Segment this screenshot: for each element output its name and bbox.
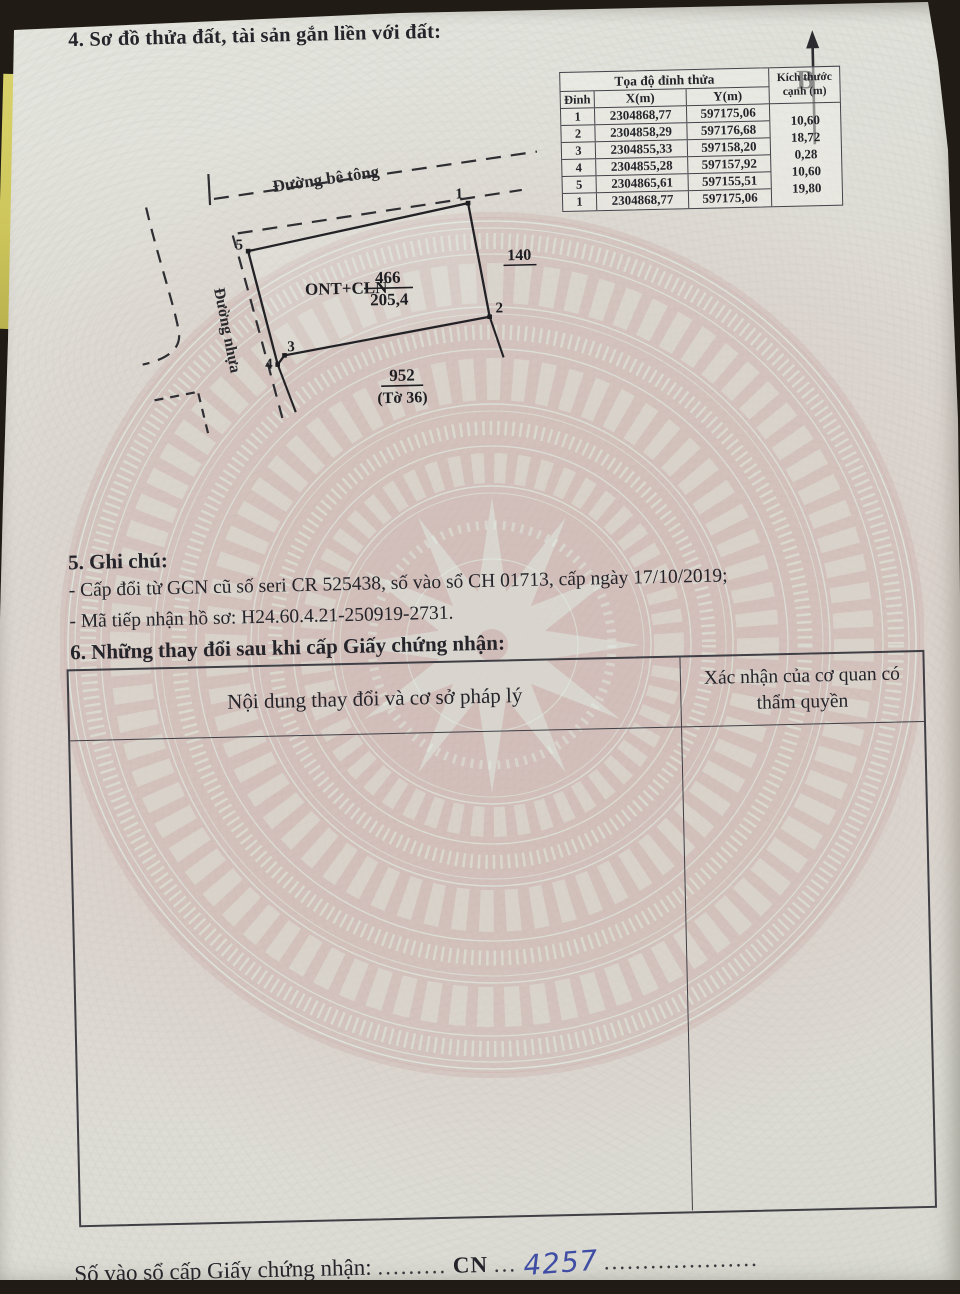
vertex-marker-1 bbox=[466, 201, 471, 206]
col-header-vertex: Đỉnh bbox=[561, 91, 595, 108]
road-corner-dashed bbox=[154, 392, 208, 435]
fraction-bar bbox=[364, 287, 413, 288]
road-left-outer-dashed bbox=[139, 207, 180, 365]
dotted-line: ... bbox=[493, 1251, 517, 1277]
adjacent-parcel-right: 140 bbox=[507, 247, 531, 265]
section5-title: 5. Ghi chú: bbox=[68, 548, 168, 575]
changes-col-content-header: Nội dung thay đổi và cơ sở pháp lý bbox=[69, 657, 682, 740]
serial-label: Số vào sổ cấp Giấy chứng nhận: bbox=[74, 1255, 372, 1287]
col-header-y: Y(m) bbox=[687, 87, 769, 105]
adjacent-bottom-fraction-bar bbox=[381, 385, 423, 386]
vertex-label-1: 1 bbox=[455, 186, 463, 202]
road-left-label: Đường nhựa bbox=[210, 286, 244, 374]
vertex-label-4: 4 bbox=[265, 357, 273, 373]
vertex-label-2: 2 bbox=[495, 300, 503, 316]
road-top-label: Đường bê tông bbox=[271, 162, 381, 196]
coord-row: 1 2304868,77 597175,06 bbox=[563, 189, 771, 211]
changes-table-body bbox=[70, 722, 935, 1224]
handwritten-serial-number: 4257 bbox=[522, 1244, 600, 1283]
vertex-marker-4 bbox=[275, 362, 280, 367]
plot-diagram: 1 2 3 4 5 Đường bê tông Đường nhựa ONT+C… bbox=[119, 138, 566, 448]
parcel-area: 205,4 bbox=[370, 290, 409, 310]
boundary-extension-right bbox=[490, 316, 504, 357]
vertex-marker-3 bbox=[282, 353, 287, 358]
col-header-edge-length: Kích thước cạnh (m) bbox=[769, 67, 840, 105]
serial-line: Số vào sổ cấp Giấy chứng nhận: .........… bbox=[74, 1240, 759, 1289]
road-edge-tick bbox=[208, 174, 210, 205]
col-header-x: X(m) bbox=[595, 89, 687, 107]
changes-table: Nội dung thay đổi và cơ sở pháp lý Xác n… bbox=[67, 650, 937, 1227]
certificate-page: 4. Sơ đồ thửa đất, tài sản gắn liền với … bbox=[0, 0, 960, 1280]
edge-length-values: 10,60 18,72 0,28 10,60 19,80 bbox=[770, 103, 842, 207]
serial-prefix: CN bbox=[453, 1252, 489, 1278]
vertex-label-5: 5 bbox=[235, 237, 243, 253]
section5-note-2: - Mã tiếp nhận hồ sơ: H24.60.4.21-250919… bbox=[69, 603, 453, 634]
changes-confirm-cell bbox=[682, 722, 935, 1210]
coordinate-table: Tọa độ đỉnh thửa Đỉnh X(m) Y(m) 1 230486… bbox=[559, 66, 843, 212]
vertex-marker-5 bbox=[246, 249, 251, 254]
vertex-label-3: 3 bbox=[287, 339, 295, 355]
vertex-marker-2 bbox=[487, 314, 492, 319]
dotted-line: ......... bbox=[377, 1253, 447, 1280]
boundary-extension-left bbox=[278, 364, 296, 412]
changes-col-confirm-header: Xác nhận của cơ quan có thẩm quyền bbox=[680, 652, 924, 726]
section4-title: 4. Sơ đồ thửa đất, tài sản gắn liền với … bbox=[68, 21, 441, 52]
adjacent-parcel-sheet: (Tờ 36) bbox=[377, 389, 428, 407]
parcel-number: 466 bbox=[375, 268, 401, 288]
adjacent-parcel-bottom: 952 bbox=[389, 365, 415, 385]
changes-content-cell bbox=[70, 727, 693, 1223]
north-arrow-head bbox=[806, 30, 819, 48]
dotted-line: .................... bbox=[603, 1246, 759, 1275]
adjacent-right-underline bbox=[504, 265, 537, 266]
